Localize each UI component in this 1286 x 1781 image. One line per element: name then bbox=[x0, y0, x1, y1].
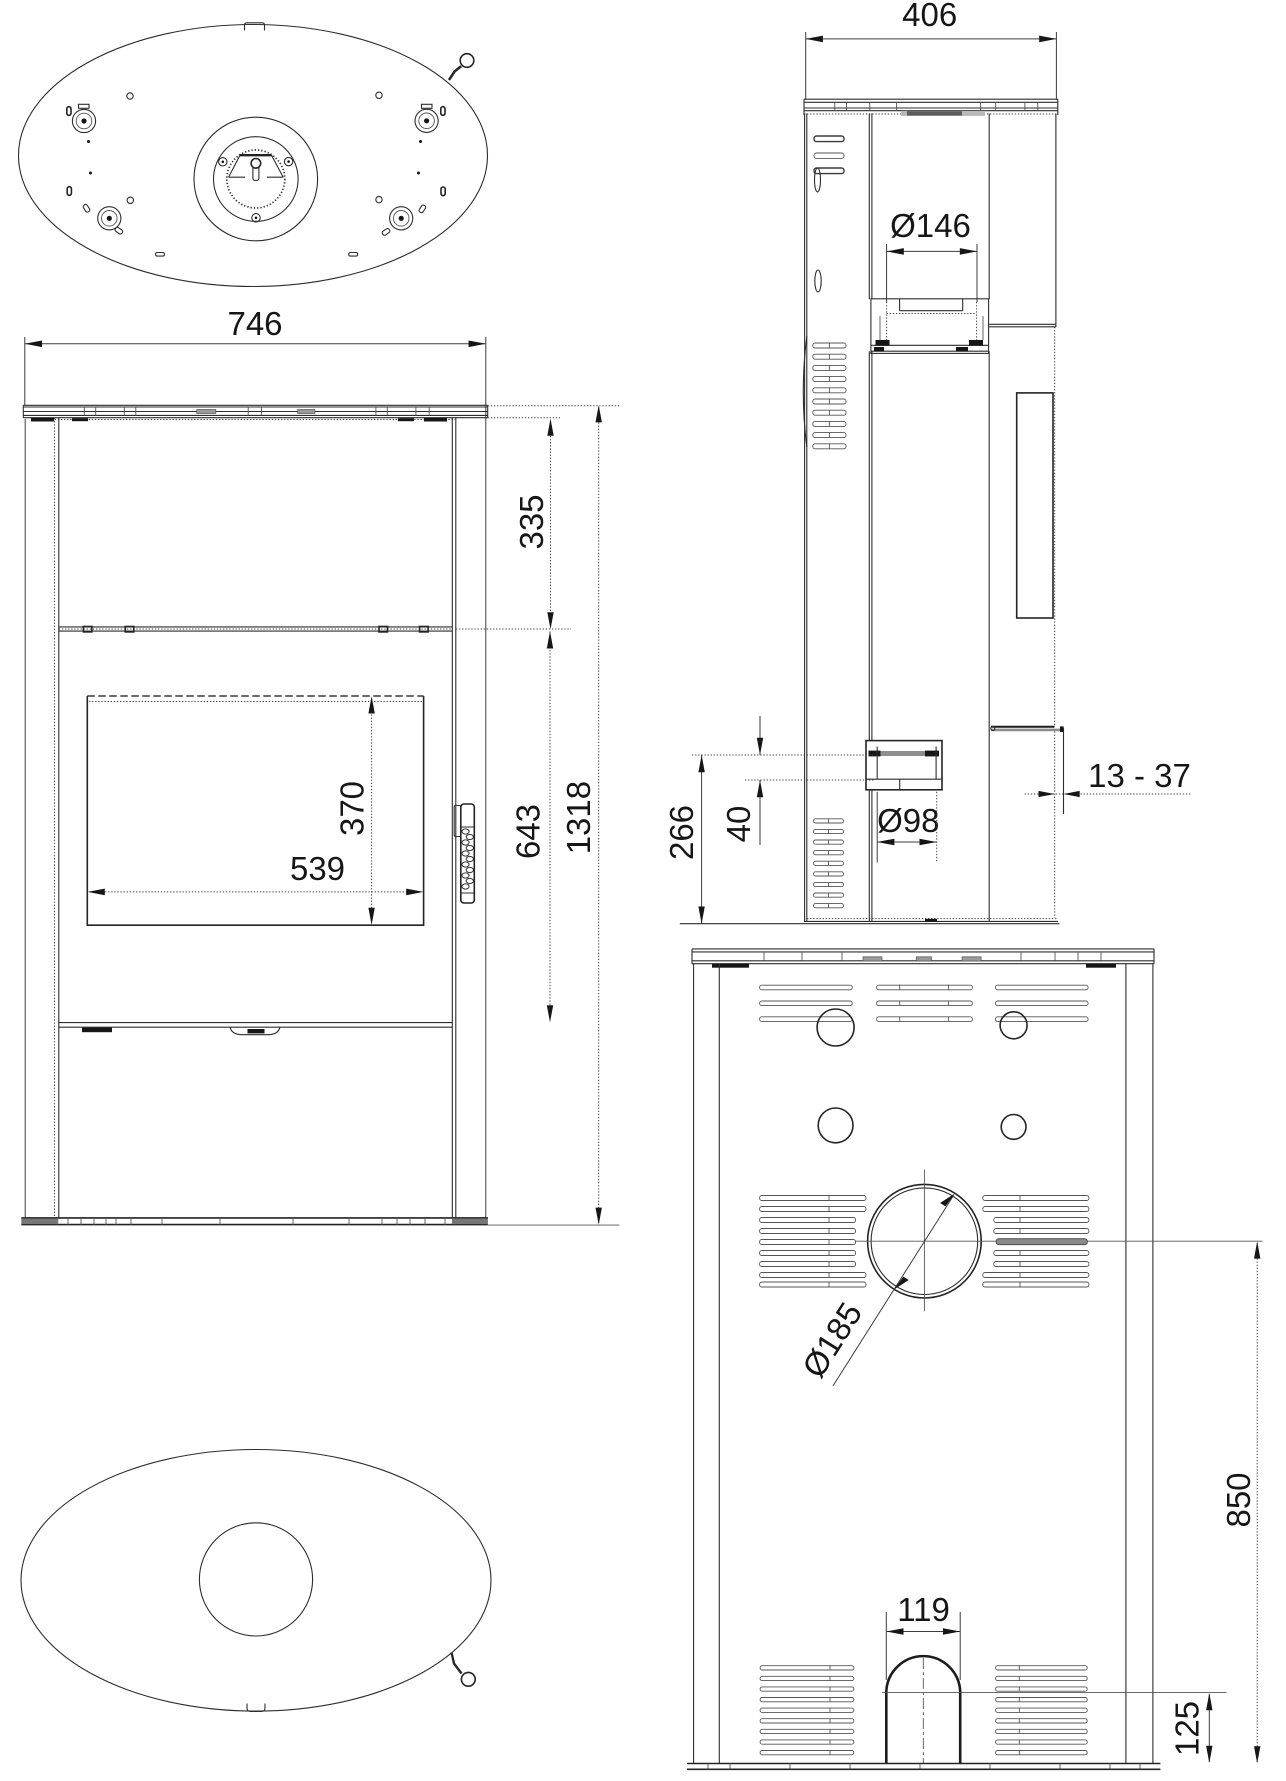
svg-text:125: 125 bbox=[1169, 1701, 1206, 1756]
svg-text:643: 643 bbox=[510, 804, 547, 859]
svg-text:539: 539 bbox=[290, 850, 345, 887]
svg-text:370: 370 bbox=[334, 781, 371, 836]
svg-text:1318: 1318 bbox=[560, 781, 597, 854]
svg-text:746: 746 bbox=[227, 305, 282, 342]
svg-text:119: 119 bbox=[897, 1591, 950, 1628]
svg-text:406: 406 bbox=[902, 0, 957, 33]
svg-text:Ø98: Ø98 bbox=[877, 802, 939, 839]
svg-text:Ø146: Ø146 bbox=[890, 207, 971, 244]
svg-text:13 - 37: 13 - 37 bbox=[1088, 757, 1191, 794]
svg-text:266: 266 bbox=[663, 805, 700, 860]
svg-text:850: 850 bbox=[1220, 1472, 1257, 1527]
svg-text:40: 40 bbox=[720, 806, 757, 843]
svg-text:335: 335 bbox=[513, 494, 550, 549]
svg-text:Ø185: Ø185 bbox=[795, 1296, 869, 1384]
